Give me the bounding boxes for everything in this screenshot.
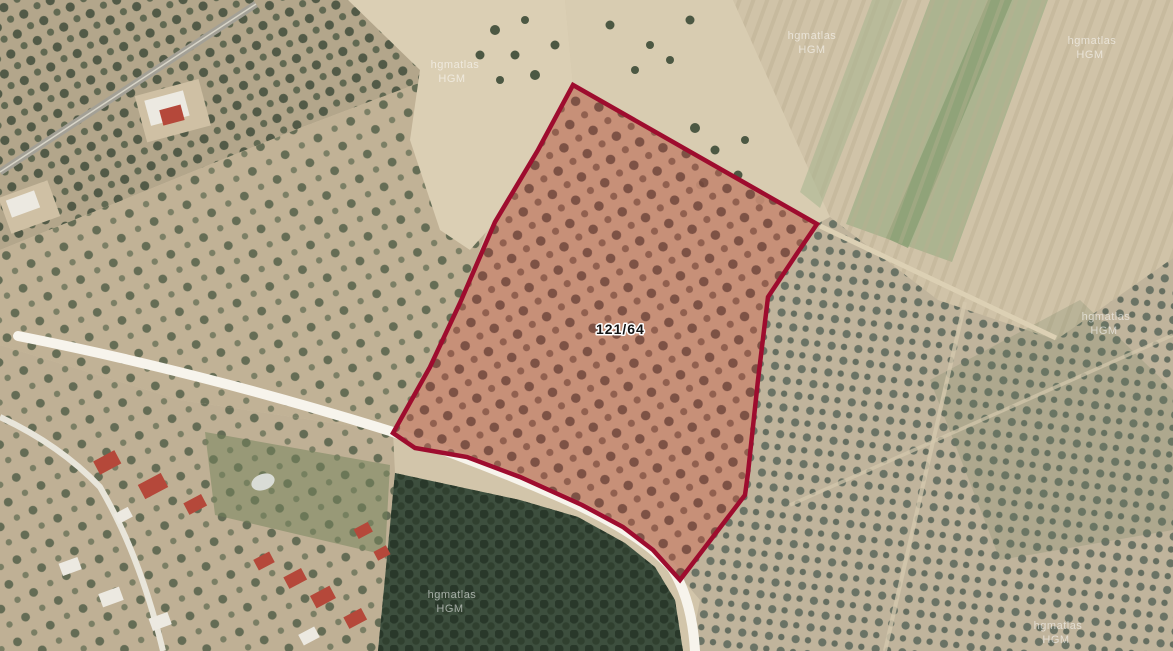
satellite-map-view[interactable]: 121/64 hgmatlas HGM hgmatlas HGM hgmatla… xyxy=(0,0,1173,651)
watermark-text: hgmatlas xyxy=(431,59,480,71)
watermark-text: HGM xyxy=(436,603,463,615)
satellite-imagery: 121/64 hgmatlas HGM hgmatlas HGM hgmatla… xyxy=(0,0,1173,651)
watermark-text: HGM xyxy=(798,44,825,56)
watermark-text: HGM xyxy=(1076,49,1103,61)
watermark-text: hgmatlas xyxy=(1034,620,1083,632)
watermark-text: hgmatlas xyxy=(1082,311,1131,323)
watermark-text: hgmatlas xyxy=(1068,35,1117,47)
watermark-text: HGM xyxy=(1042,634,1069,646)
parcel-label: 121/64 xyxy=(596,321,645,337)
watermark-text: hgmatlas xyxy=(428,589,477,601)
watermark-text: HGM xyxy=(1090,325,1117,337)
watermark-text: HGM xyxy=(438,73,465,85)
watermark-text: hgmatlas xyxy=(788,30,837,42)
